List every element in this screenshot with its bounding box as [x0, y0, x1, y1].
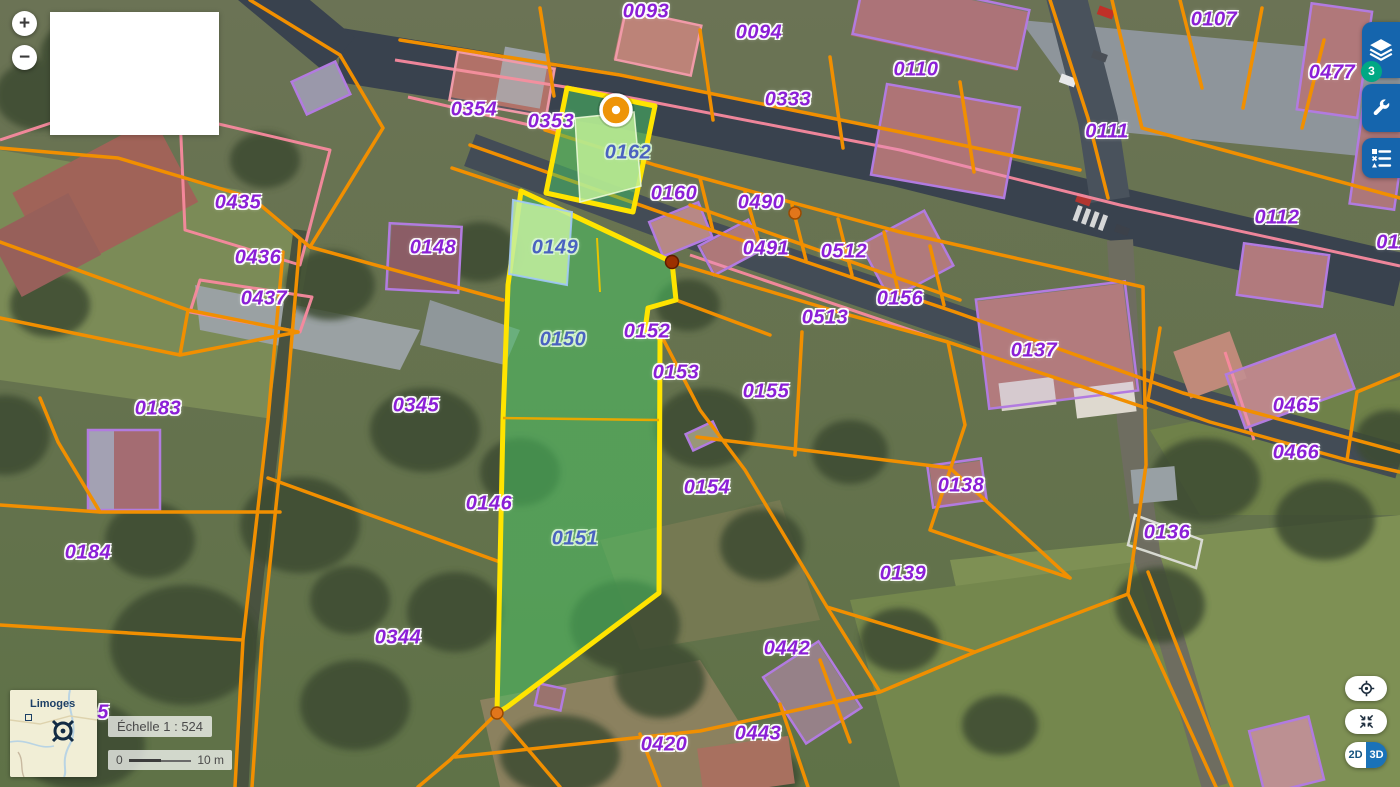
toggle-3d[interactable]: 3D	[1366, 742, 1387, 768]
scale-bar-end: 10 m	[197, 753, 224, 767]
layers-count-badge: 3	[1361, 61, 1382, 82]
vertex-dot	[491, 707, 503, 719]
zoom-controls: + −	[12, 11, 37, 70]
wrench-icon	[1370, 97, 1392, 119]
minimap-place-label: Limoges	[30, 698, 75, 710]
zoom-out-button[interactable]: −	[12, 45, 37, 70]
selected-point-marker[interactable]	[599, 93, 634, 128]
toggle-2d[interactable]: 2D	[1345, 742, 1366, 768]
vertex-dot	[789, 207, 801, 219]
collapse-button[interactable]	[1345, 709, 1387, 734]
scale-bar-start: 0	[116, 753, 123, 767]
scale-bar-line	[129, 756, 192, 764]
layers-button[interactable]: 3	[1362, 22, 1400, 78]
tools-button[interactable]	[1362, 84, 1400, 132]
bottom-right-controls: 2D 3D	[1345, 676, 1387, 768]
dimension-toggle[interactable]: 2D 3D	[1345, 742, 1387, 768]
scale-bar: 0 10 m	[108, 750, 232, 770]
locate-button[interactable]	[1345, 676, 1387, 701]
zoom-in-button[interactable]: +	[12, 11, 37, 36]
layers-icon	[1368, 37, 1394, 63]
legend-list-icon	[1369, 146, 1393, 170]
blank-panel	[50, 12, 219, 135]
overview-minimap[interactable]: Limoges	[10, 690, 97, 777]
collapse-arrows-icon	[1358, 713, 1375, 730]
locate-icon	[1358, 680, 1375, 697]
minimap-position-icon	[53, 721, 73, 741]
map-viewer: 0093009401100333010704770111011203540353…	[0, 0, 1400, 787]
legend-button[interactable]	[1362, 138, 1400, 178]
scale-ratio-text: Échelle 1 : 524	[117, 719, 203, 734]
minimap-town-marker	[25, 714, 32, 721]
highlight-subparcel-0149	[509, 200, 572, 285]
vertex-dot	[666, 256, 679, 269]
scale-ratio: Échelle 1 : 524	[108, 716, 212, 737]
right-toolbar: 3	[1362, 22, 1400, 178]
